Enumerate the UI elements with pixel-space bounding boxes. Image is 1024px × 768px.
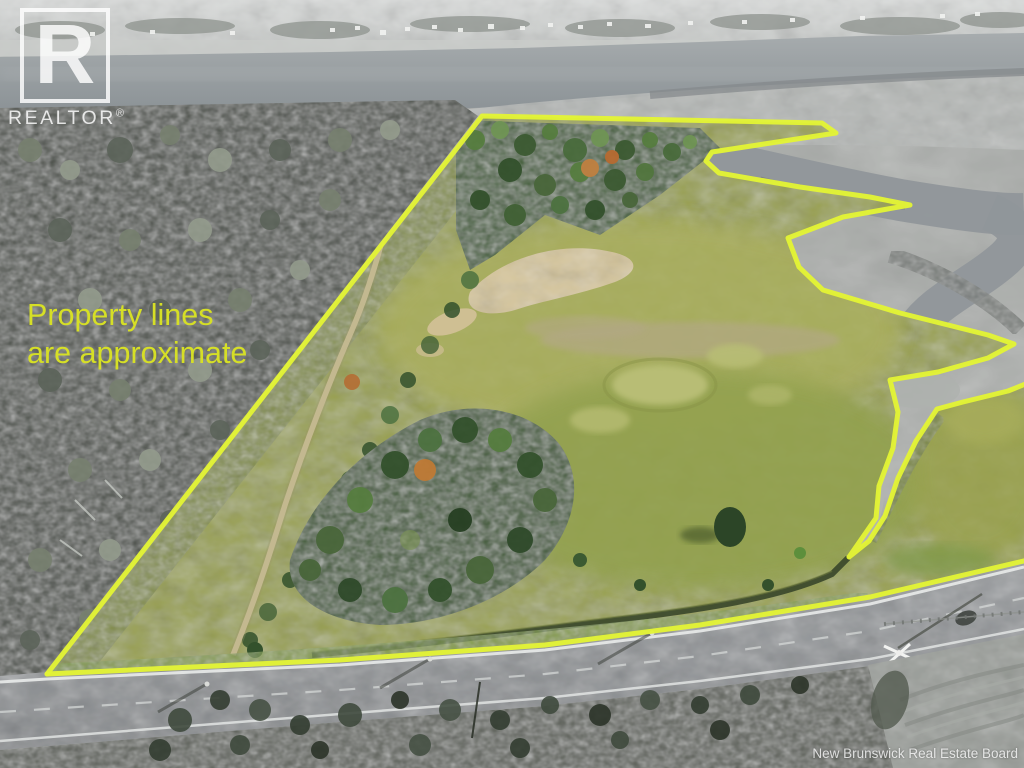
realtor-logo: R REALTOR® bbox=[8, 8, 124, 130]
realtor-logo-letter: R bbox=[35, 12, 96, 96]
aerial-listing-photo: R REALTOR® Property lines are approximat… bbox=[0, 0, 1024, 768]
aerial-photo bbox=[0, 0, 1024, 768]
property-lines-disclaimer: Property lines are approximate bbox=[27, 296, 247, 372]
disclaimer-line-1: Property lines bbox=[27, 296, 247, 334]
realtor-logo-frame: R bbox=[20, 8, 110, 103]
real-estate-board-watermark: New Brunswick Real Estate Board bbox=[812, 746, 1018, 761]
realtor-logo-wordmark: REALTOR® bbox=[8, 107, 124, 130]
registered-trademark-symbol: ® bbox=[116, 108, 124, 120]
disclaimer-line-2: are approximate bbox=[27, 334, 247, 372]
